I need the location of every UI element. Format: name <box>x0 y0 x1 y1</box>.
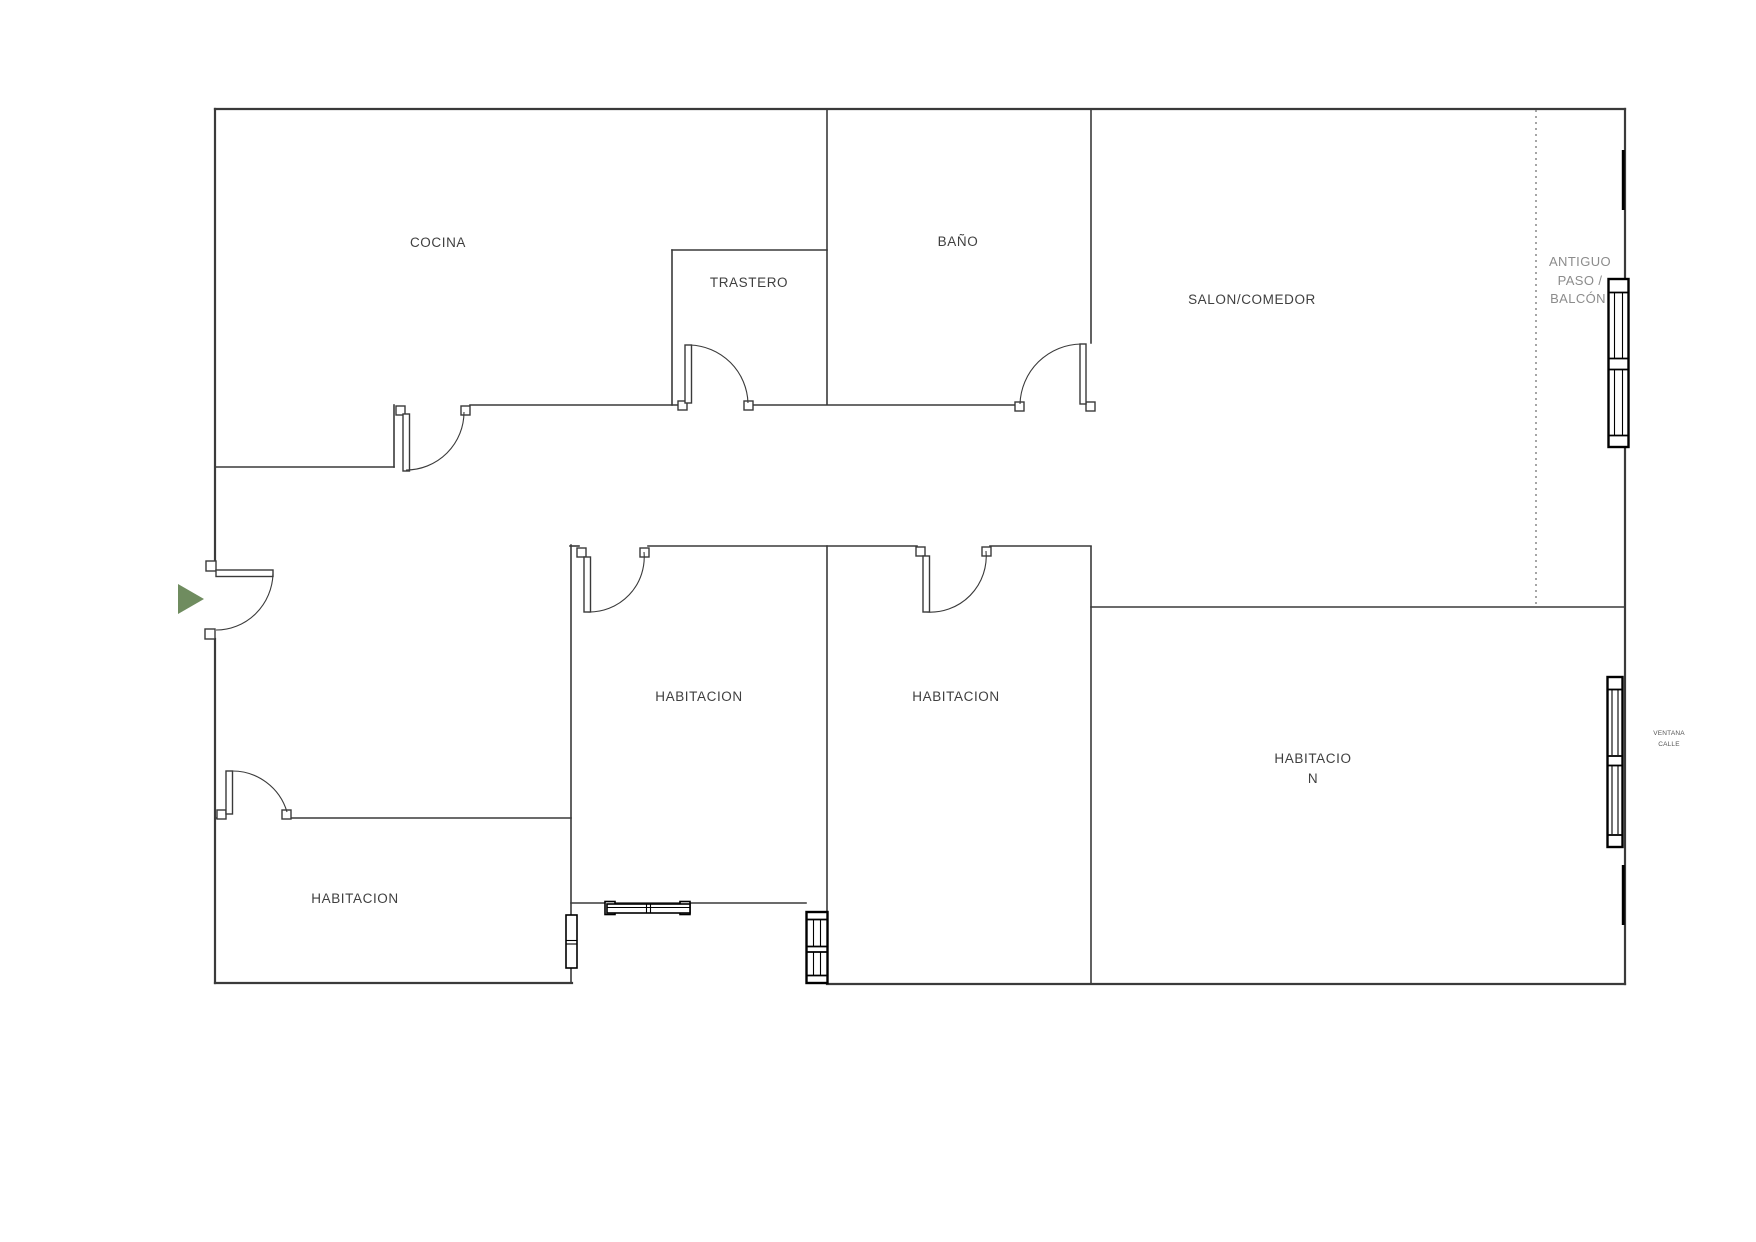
door-entry-jamb-top <box>206 561 216 571</box>
room-label-trastero: TRASTERO <box>710 275 788 290</box>
room-label-bano: BAÑO <box>938 234 979 249</box>
window-lightwell-right <box>807 912 828 983</box>
door-hab2-leaf <box>923 556 930 612</box>
door-entry <box>205 561 273 639</box>
room-label-habitacion-right-line1: HABITACIO <box>1274 751 1351 766</box>
door-habbl-leaf <box>226 771 233 814</box>
door-bano-swing-arc <box>1020 344 1081 404</box>
door-entry-swing-arc <box>216 574 273 630</box>
window-lightwell-right-frame <box>807 912 828 983</box>
window-lightwell-top-frame <box>607 904 690 913</box>
door-hab2-swing-arc <box>926 551 986 612</box>
window-balcony-frame <box>1609 279 1629 447</box>
door-cocina-jamb-right <box>461 406 470 415</box>
annotation-ventana-calle: VENTANA CALLE <box>1653 730 1685 748</box>
antiguo-paso-line3: BALCÓN <box>1550 291 1606 306</box>
door-habitacion-bottom-left <box>217 771 291 819</box>
door-bano <box>1015 344 1095 411</box>
window-lightwell-left-frame <box>566 915 577 968</box>
entrance-arrow-icon <box>178 584 204 614</box>
door-cocina <box>396 406 470 471</box>
door-bano-jamb-right <box>1086 402 1095 411</box>
door-habitacion-top-right <box>916 547 991 612</box>
room-label-habitacion-top-right: HABITACION <box>912 689 1000 704</box>
door-trastero-swing-arc <box>690 345 748 403</box>
door-cocina-swing-arc <box>406 412 464 470</box>
door-entry-jamb-bottom <box>205 629 215 639</box>
door-habitacion-top-left <box>577 548 649 612</box>
door-trastero-leaf <box>685 345 692 403</box>
door-hab1-leaf <box>584 557 591 612</box>
room-label-habitacion-top-left: HABITACION <box>655 689 743 704</box>
door-habbl-swing-arc <box>232 771 287 812</box>
door-hab1-swing-arc <box>587 552 644 612</box>
antiguo-paso-line2: PASO / <box>1558 273 1603 288</box>
window-street-frame <box>1608 677 1623 847</box>
room-label-cocina: COCINA <box>410 235 466 250</box>
room-label-habitacion-right-line2: N <box>1308 771 1318 786</box>
window-balcony <box>1609 279 1629 447</box>
door-trastero <box>678 345 753 410</box>
room-label-salon-comedor: SALON/COMEDOR <box>1188 292 1316 307</box>
room-labels: COCINA TRASTERO BAÑO SALON/COMEDOR HABIT… <box>311 234 1351 906</box>
window-lightwell-top <box>605 902 690 915</box>
window-street-right <box>1608 677 1623 847</box>
annotation-antiguo-paso-balcon: ANTIGUO PASO / BALCÓN <box>1549 254 1611 306</box>
ventana-calle-line1: VENTANA <box>1653 730 1685 737</box>
room-label-habitacion-bottom-left: HABITACION <box>311 891 399 906</box>
antiguo-paso-line1: ANTIGUO <box>1549 254 1611 269</box>
door-bano-leaf <box>1080 344 1086 404</box>
door-hab2-jamb-left <box>916 547 925 556</box>
door-cocina-leaf <box>403 414 410 471</box>
window-lightwell-left <box>566 915 577 968</box>
door-hab1-jamb-left <box>577 548 586 557</box>
door-habbl-jamb-left <box>217 810 226 819</box>
floor-plan-page: COCINA TRASTERO BAÑO SALON/COMEDOR HABIT… <box>0 0 1756 1242</box>
door-entry-leaf <box>216 570 273 577</box>
floor-plan-canvas: COCINA TRASTERO BAÑO SALON/COMEDOR HABIT… <box>0 0 1756 1242</box>
ventana-calle-line2: CALLE <box>1658 741 1680 748</box>
